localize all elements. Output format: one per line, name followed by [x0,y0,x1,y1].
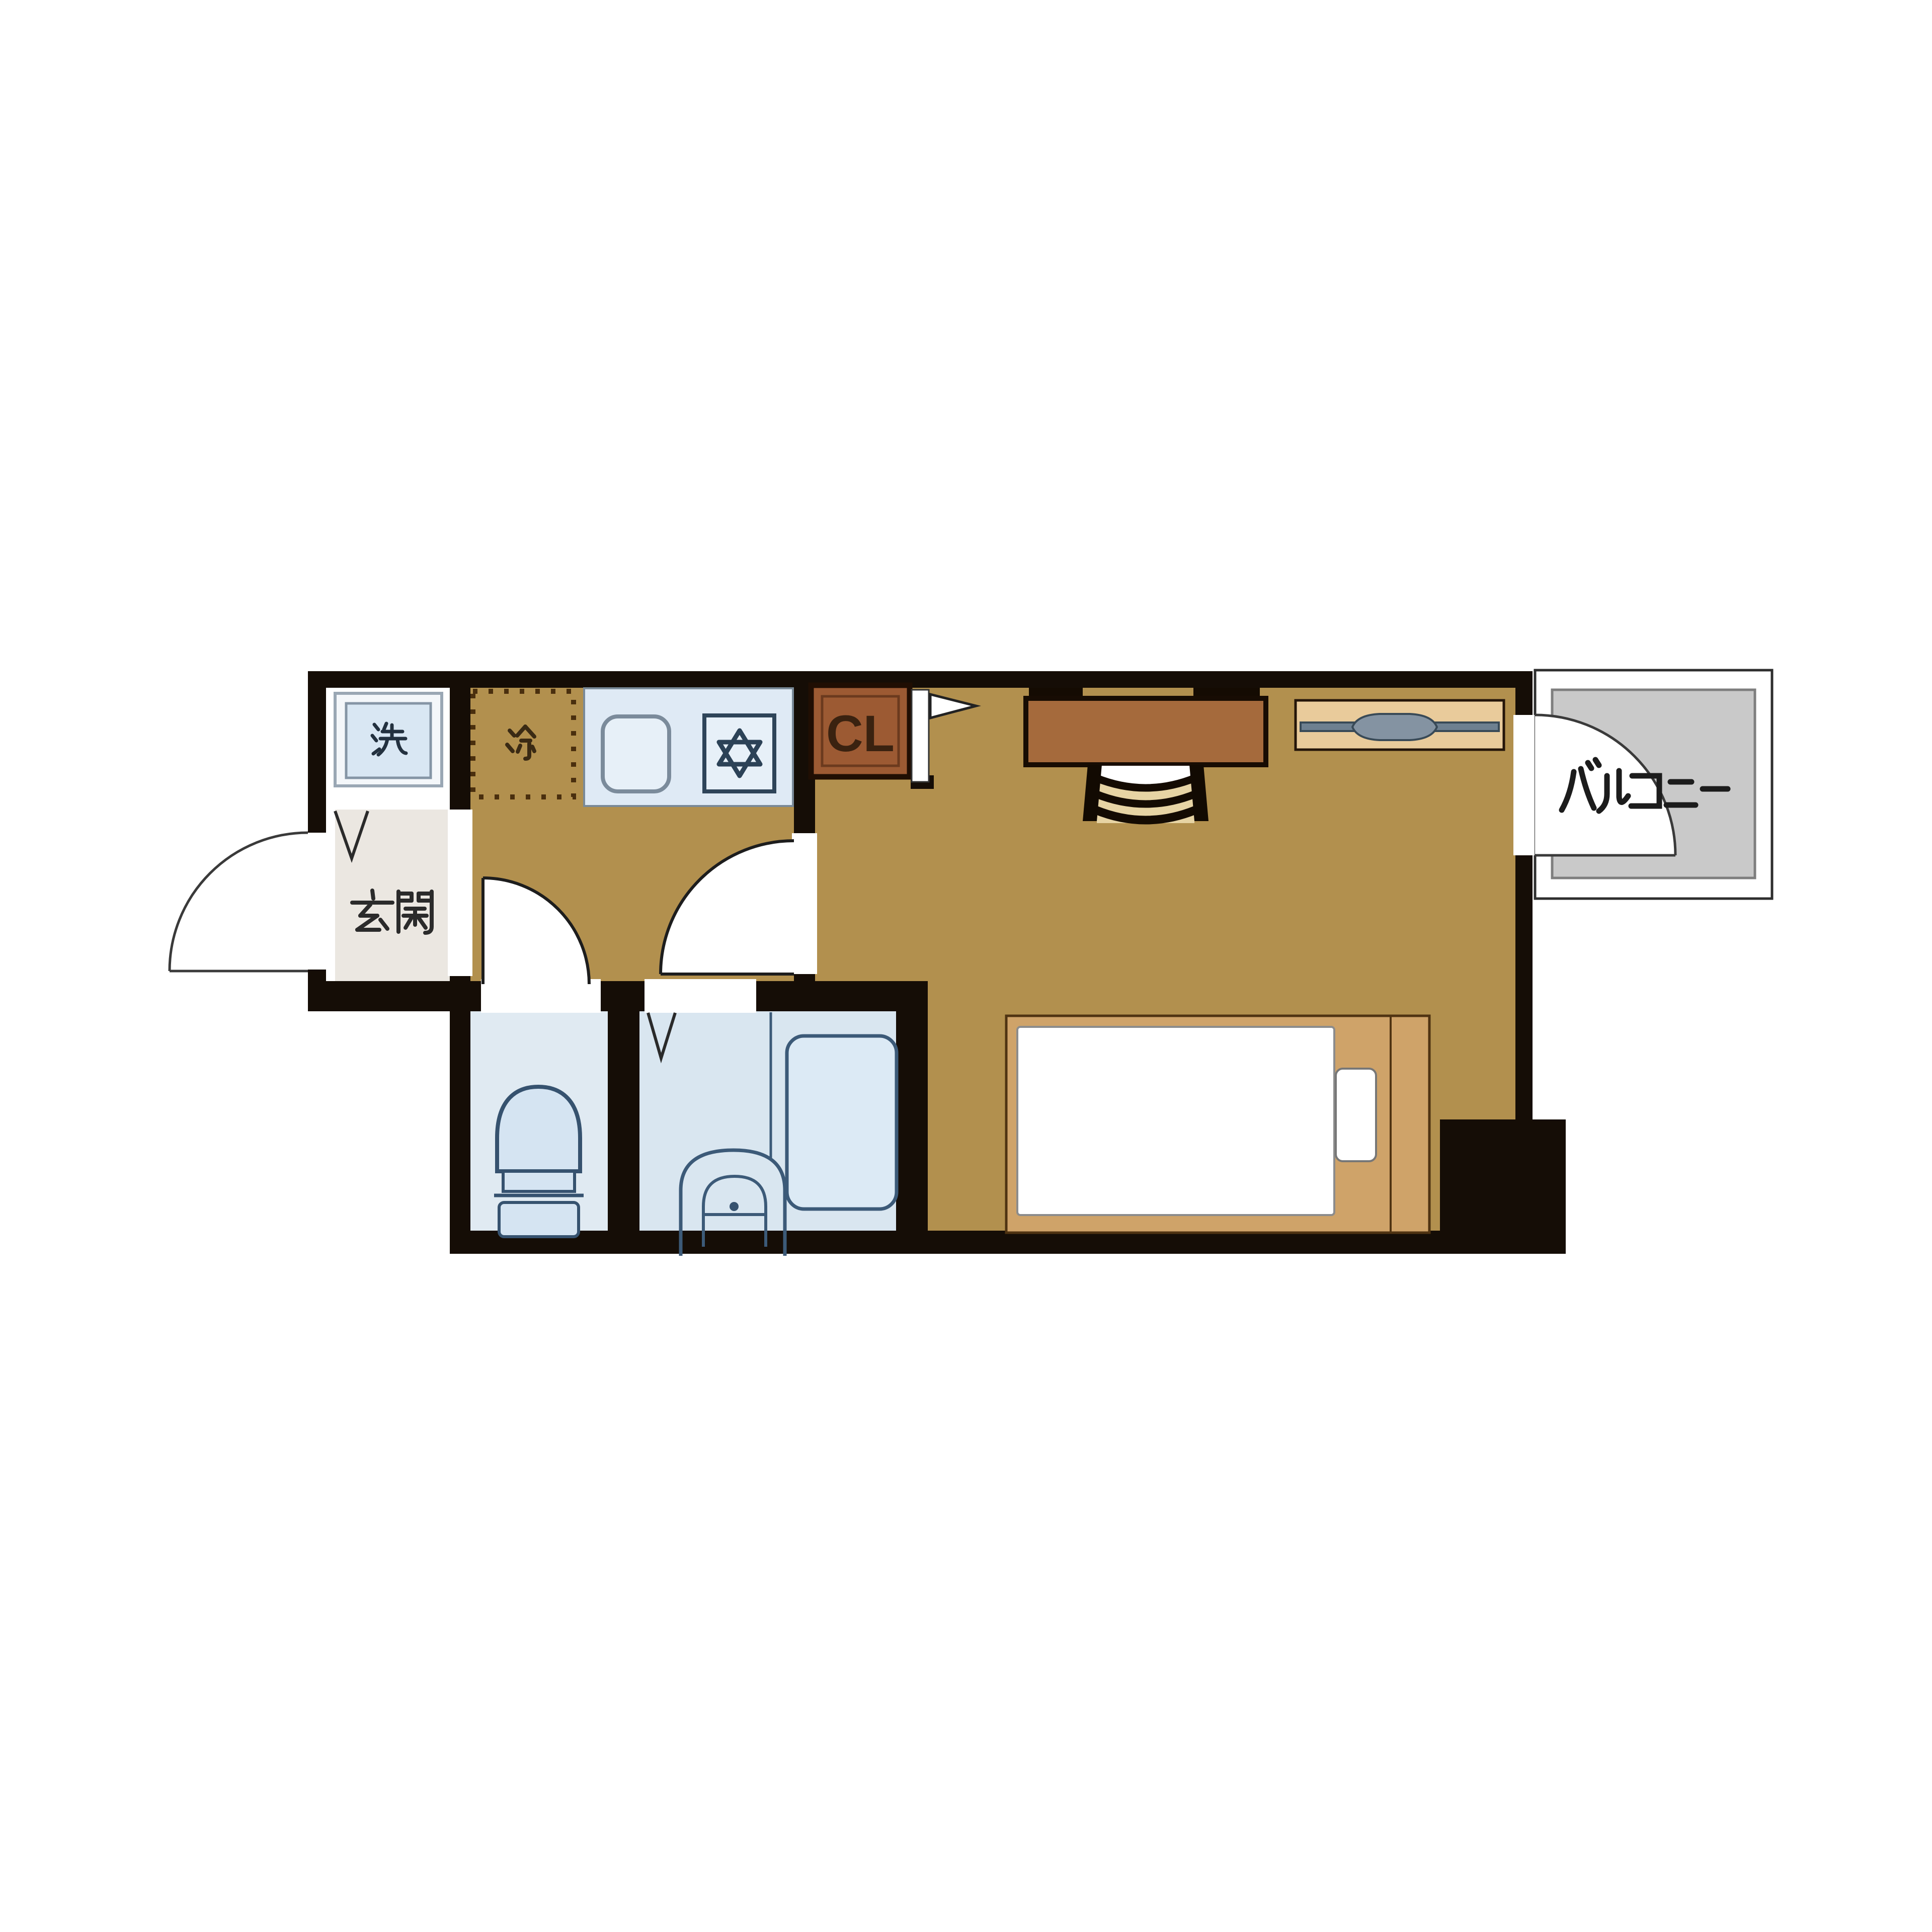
svg-text:CL: CL [826,705,895,762]
